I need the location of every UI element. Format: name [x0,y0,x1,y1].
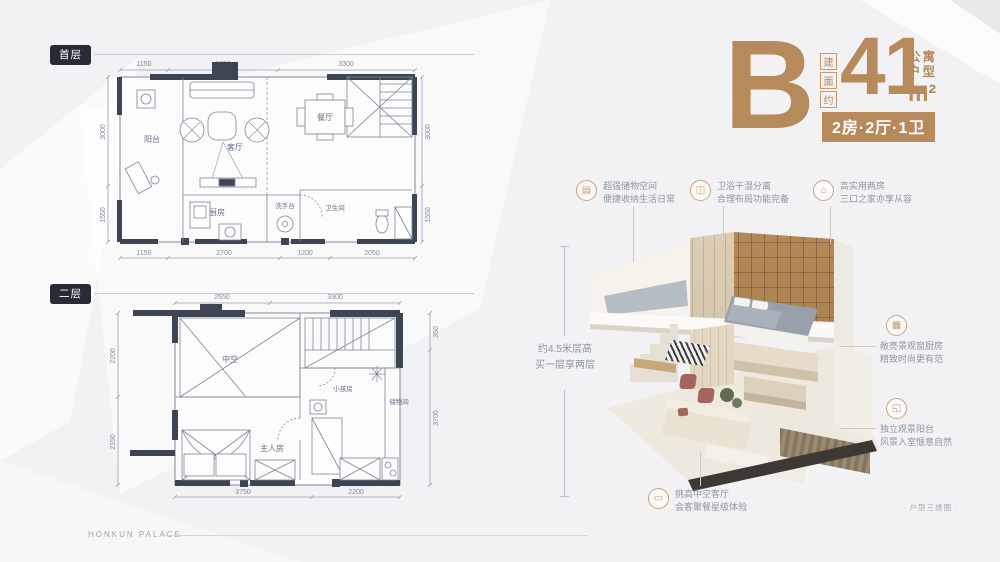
annotation-line: 挑高中空客厅 [675,488,747,501]
room-label-kitchen: 厨房 [209,207,225,217]
room-label-living: 客厅 [227,142,243,152]
first-floor-badge: 首层 [50,45,91,65]
unit-letter: B [724,22,815,148]
dim: 2200 [348,489,364,496]
first-floor-plan: 1150 2650 3300 1150 2700 1200 2050 3000 … [95,52,435,270]
area-approx-label: 建 面 约 [820,53,837,108]
area-approx-char: 建 [820,53,837,70]
dim: 1150 [136,250,151,257]
connector-storage [633,206,634,262]
annotation-line: 精致时尚更有范 [880,353,943,366]
room-label-washstand: 洗手台 [275,201,295,210]
annotation-line: 超强储物空间 [603,180,675,193]
dim: 1200 [297,250,313,257]
dim: 2700 [216,250,232,257]
room-label-balcony: 阳台 [144,134,160,144]
connector-bathroom [723,206,724,248]
room-label-void: 中空 [222,354,238,364]
connector-two-rooms [830,206,831,244]
plan1-outline [120,77,415,242]
dim: 2200 [110,348,117,364]
unit-type-line: 公寓 [908,50,937,65]
dim: 3000 [425,124,432,140]
annotation-line: 会客聚餐星级体验 [675,501,747,514]
connector-living [700,452,701,486]
bathroom-icon: ◫ [690,180,711,201]
sofa-pillow [678,407,689,416]
annotation-kitchen: ▦ 敞亮景观窗厨房 精致时尚更有范 [880,315,943,366]
bed-icon: ⌂ [813,180,834,201]
annotation-line: 卫浴干湿分离 [717,180,789,193]
dim: 1550 [425,207,432,223]
unit-type-label: 公寓 户型 [908,50,937,80]
dim: 1150 [136,61,151,68]
dim: 3000 [100,124,107,140]
second-floor-badge: 二层 [50,284,91,304]
annotation-line: 三口之家亦享从容 [840,193,912,206]
dim: 2650 [214,294,230,301]
dim: 3300 [327,294,343,301]
room-label-master: 主人房 [260,443,284,453]
height-line-bottom [564,390,565,496]
dim: 350 [433,326,440,338]
annotation-living: ▭ 挑高中空客厅 会客聚餐星级体验 [648,488,747,514]
second-floor-plan: 2650 3300 3750 2200 2200 2150 350 3700 [100,290,445,512]
annotation-balcony: ◱ 独立观景阳台 风景入室惬意自然 [880,398,952,449]
dim: 3700 [433,410,440,426]
sofa-icon: ▭ [648,488,669,509]
annotation-line: 风景入室惬意自然 [880,436,952,449]
unit-type-line: 户型 [908,65,937,80]
annotation-bathroom: ◫ 卫浴干湿分离 合理布局功能完备 [690,180,789,206]
brand-line [160,535,588,536]
armchair [697,388,715,403]
storage-icon: ▤ [576,180,597,201]
height-tick-bottom [560,496,569,497]
area-approx-char: 约 [820,91,837,108]
dim: 2050 [364,250,380,257]
dim: 3300 [338,61,354,68]
annotation-line: 高实用两房 [840,180,912,193]
area-unit: m² [908,80,936,107]
dim: 2150 [110,434,117,450]
room-label-kids: 小孩房 [333,384,353,393]
room-label-storage: 储物间 [389,397,409,406]
height-line-top [564,246,565,336]
disclaimer-text: · 户型三维图 · [903,502,959,513]
annotation-line: 合理布局功能完备 [717,193,789,206]
kitchen-icon: ▦ [886,315,907,336]
balcony-icon: ◱ [886,398,907,419]
annotation-line: 便捷收纳生活日常 [603,193,675,206]
spec-badge: 2房·2厅·1卫 [822,112,935,142]
area-approx-char: 面 [820,72,837,89]
armchair [679,374,697,389]
plant [732,398,742,408]
poster-canvas: 首层 二层 1150 2650 3300 1150 2700 1200 2050… [0,0,1000,562]
dim: 1550 [100,207,107,223]
annotation-two-rooms: ⌂ 高实用两房 三口之家亦享从容 [813,180,912,206]
annotation-storage: ▤ 超强储物空间 便捷收纳生活日常 [576,180,675,206]
annotation-line: 独立观景阳台 [880,423,952,436]
connector-balcony [840,428,876,429]
connector-kitchen [840,346,876,347]
room-label-dining: 餐厅 [317,113,333,122]
room-label-bathroom: 卫生间 [325,203,345,212]
render-3d [582,212,892,512]
annotation-line: 敞亮景观窗厨房 [880,340,943,353]
dim: 3750 [235,489,251,496]
